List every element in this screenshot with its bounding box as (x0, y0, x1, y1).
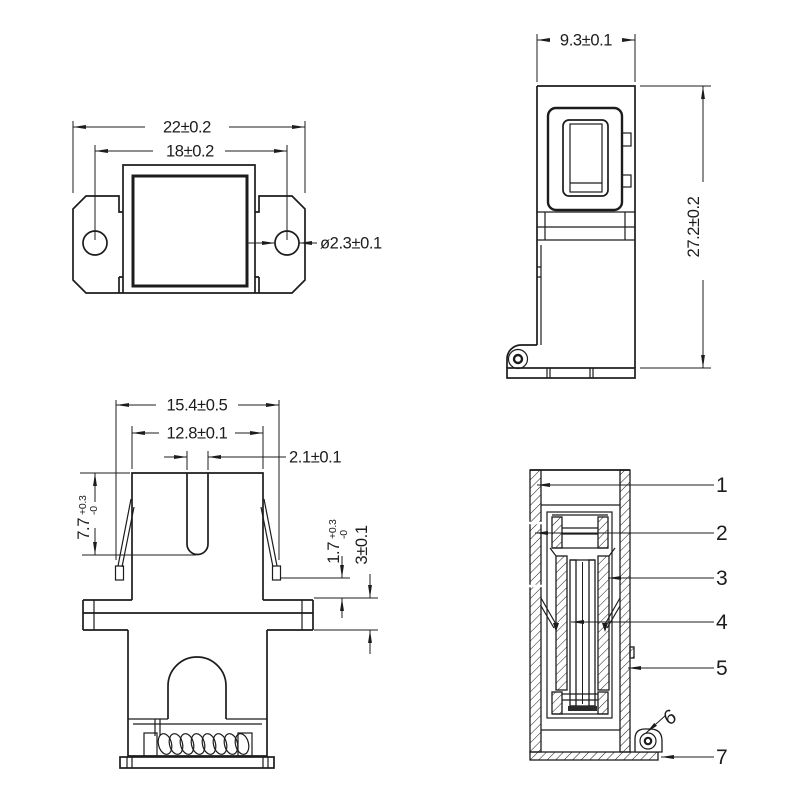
dim-front-outer-width-label: 15.4±0.5 (167, 397, 228, 415)
hinge-pin-inner (514, 355, 522, 363)
part-callout-5: 5 (716, 657, 728, 680)
side-latch-nub-upper (622, 133, 631, 146)
dim-front-flange-height: 3±0.1 (314, 525, 378, 654)
top-view: 22±0.2 18±0.2 ø2.3±0.1 (73, 119, 382, 294)
front-view-lower-body (120, 630, 274, 768)
dim-top-hole-diameter-label: ø2.3±0.1 (320, 235, 382, 253)
front-view: 15.4±0.5 12.8±0.1 2.1±0.1 7.7 +0.3 - (75, 397, 378, 769)
dim-top-outer-width-label: 22±0.2 (163, 119, 211, 137)
dim-front-flange-height-label: 3±0.1 (353, 525, 371, 564)
split-sleeve-right-wall (589, 560, 595, 706)
part-callout-1: 1 (716, 474, 728, 497)
inner-housing-section (541, 512, 620, 718)
front-view-flange (83, 600, 313, 630)
housing-wall-right (620, 470, 630, 752)
dim-front-latch-depth-tol-minus: -0 (88, 506, 100, 515)
side-shutter-hinge (509, 350, 528, 369)
side-view-socket (548, 108, 631, 210)
dim-front-latch-depth-value: 7.7 (75, 518, 93, 540)
top-view-outline (73, 165, 305, 293)
shutter-spring (156, 732, 251, 756)
dim-side-height-label: 27.2±0.2 (685, 196, 703, 257)
dim-front-inner-width: 12.8±0.1 (132, 425, 263, 470)
side-view: 9.3±0.1 27.2±0.2 (507, 32, 711, 379)
split-sleeve-left-wall (570, 560, 576, 706)
side-latch-nub-lower (622, 175, 631, 187)
dome-boss (168, 657, 226, 719)
dim-front-foot-to-flange-tol-minus: -0 (338, 530, 350, 539)
dim-top-hole-spacing-label: 18±0.2 (166, 143, 214, 161)
latch-foot-right (273, 566, 281, 580)
key-slot (187, 473, 208, 555)
dim-side-width: 9.3±0.1 (537, 32, 635, 83)
dim-front-slot-width-label: 2.1±0.1 (289, 449, 341, 467)
section-hinge (635, 729, 662, 752)
part-callout-2: 2 (716, 522, 728, 545)
dim-front-slot-width: 2.1±0.1 (164, 449, 341, 471)
dim-front-foot-to-flange-value: 1.7 (325, 542, 343, 564)
dim-front-outer-width: 15.4±0.5 (116, 397, 279, 561)
spring-seat-left (144, 733, 157, 756)
dim-side-width-label: 9.3±0.1 (560, 32, 612, 50)
adapter-opening (133, 176, 247, 286)
dim-top-hole-diameter: ø2.3±0.1 (246, 235, 382, 253)
bottom-plate-section (530, 752, 658, 760)
hinge-pin-outer (509, 350, 528, 369)
part-callout-6: 6 (659, 706, 683, 730)
section-view: 1 2 3 4 5 6 7 (529, 470, 728, 769)
latch-foot-left (116, 566, 124, 580)
engineering-drawing-canvas: 22±0.2 18±0.2 ø2.3±0.1 (0, 0, 800, 800)
base-plate (120, 757, 274, 768)
dim-front-inner-width-label: 12.8±0.1 (167, 425, 228, 443)
housing-wall-left (530, 470, 541, 752)
part-callout-7: 7 (716, 746, 728, 769)
part-callout-3: 3 (716, 567, 728, 590)
front-view-upper-body (116, 473, 281, 600)
dim-front-latch-depth: 7.7 +0.3 -0 (75, 473, 196, 555)
part-callout-4: 4 (716, 611, 728, 634)
side-view-outline (507, 86, 635, 378)
dim-side-height: 27.2±0.2 (640, 86, 711, 368)
housing-snap-nub (630, 647, 634, 658)
